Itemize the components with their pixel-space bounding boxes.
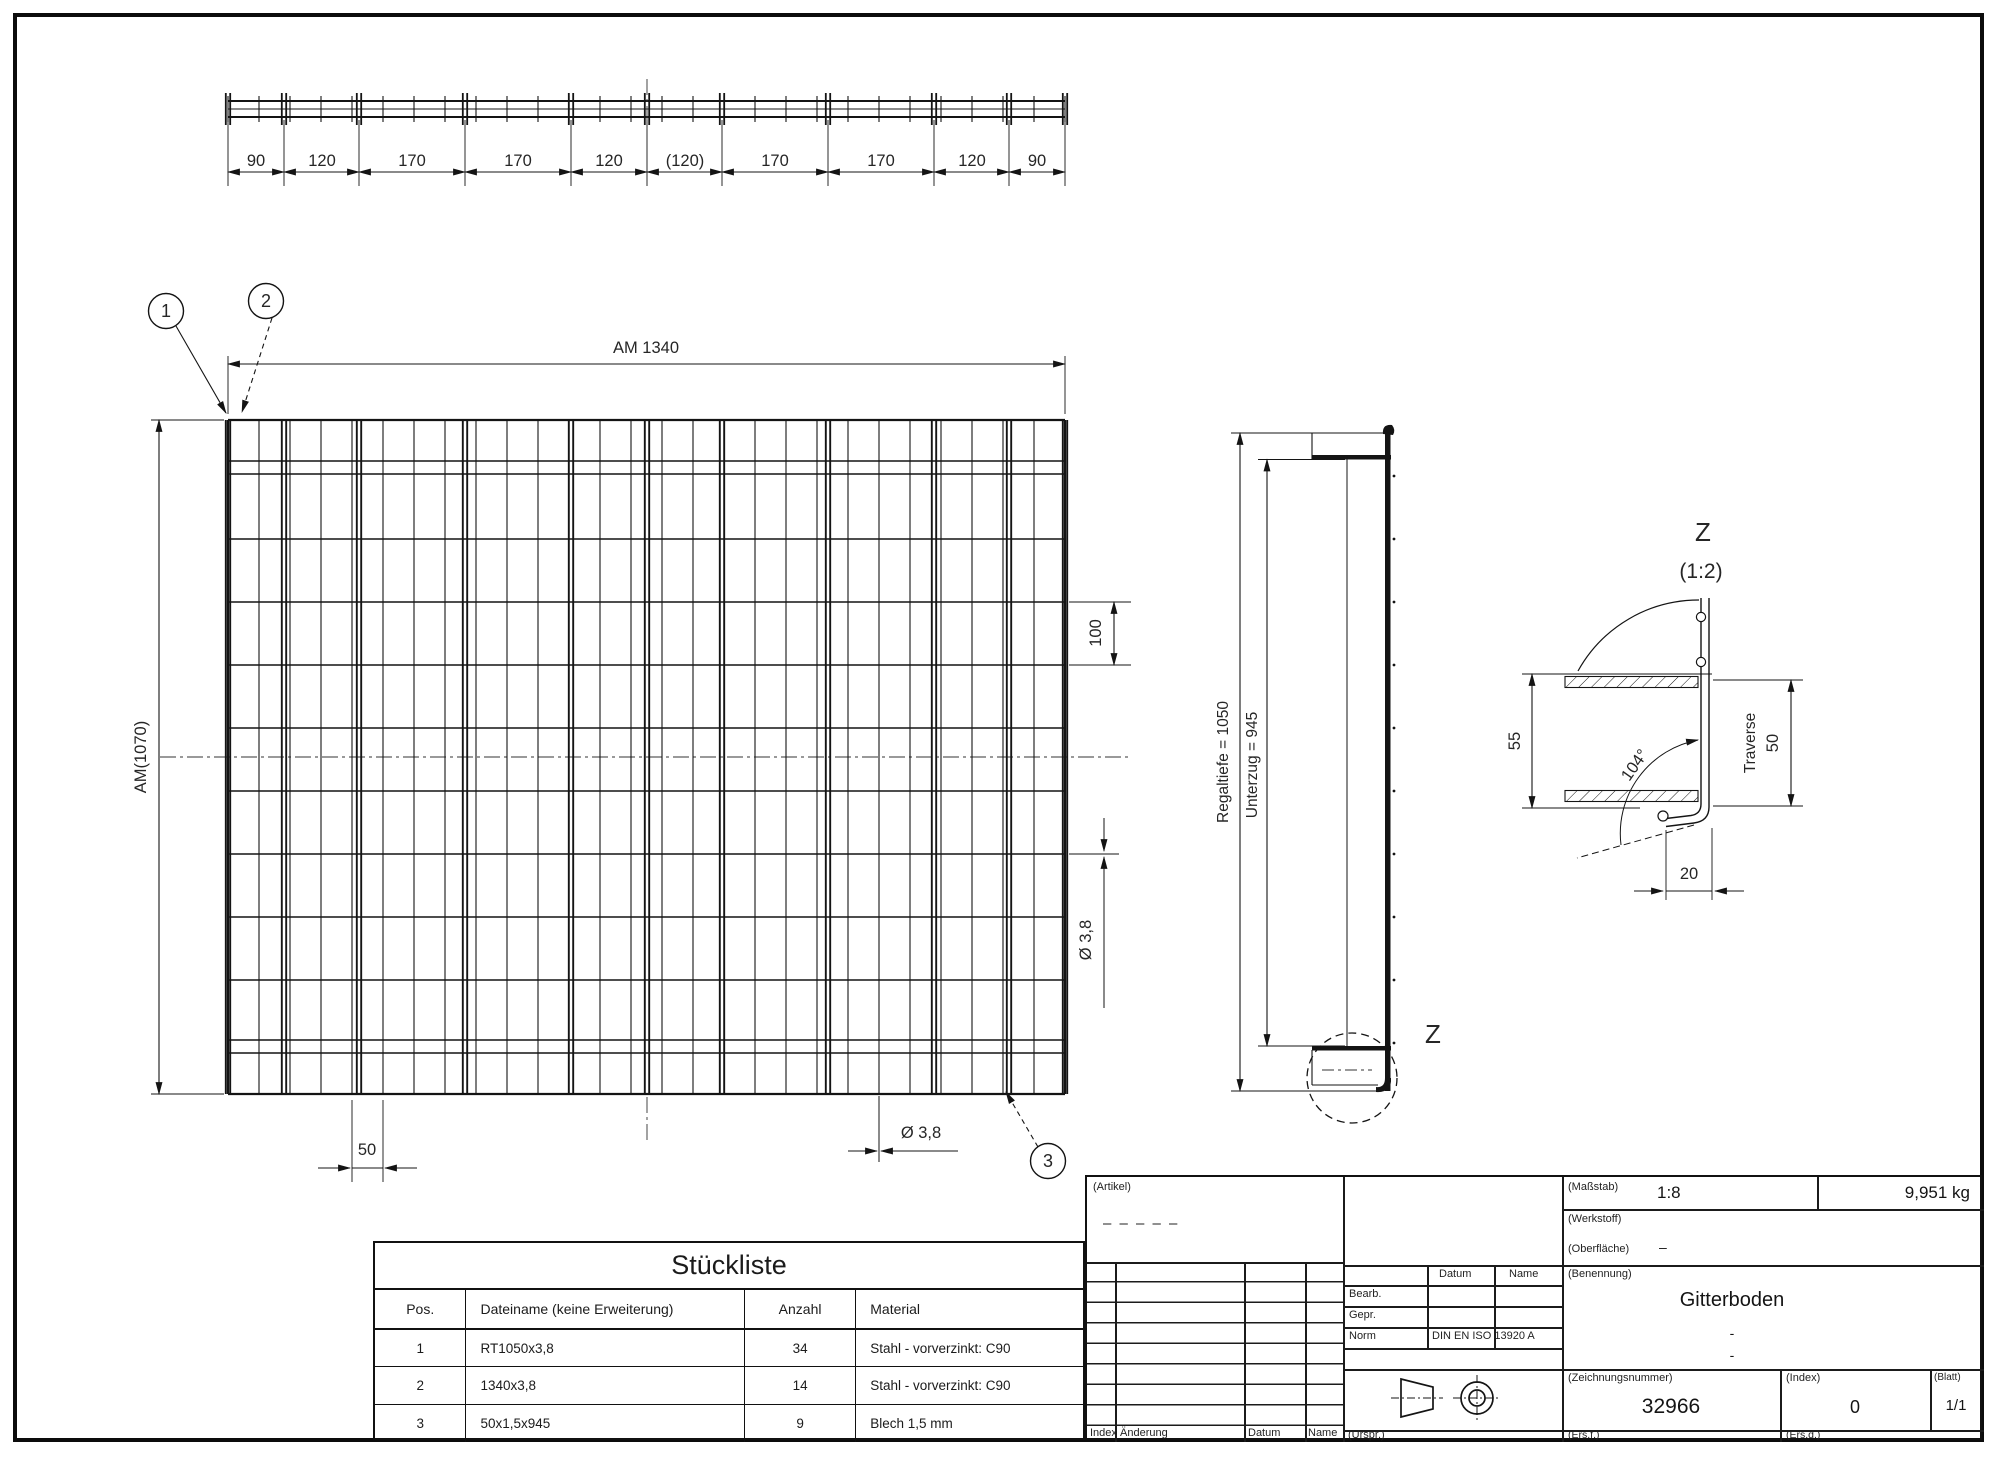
index-label: (Index) <box>1786 1372 1820 1384</box>
cell-name: RT1050x3,8 <box>466 1330 744 1366</box>
gepr-label: Gepr. <box>1349 1309 1376 1321</box>
projection-symbol <box>1389 1373 1519 1425</box>
benennung-sub1: - <box>1562 1325 1902 1341</box>
dim-100-label: 100 <box>1087 619 1105 647</box>
table-row: 3 50x1,5x945 9 Blech 1,5 mm <box>375 1405 1083 1442</box>
chain-dim-9: 120 <box>958 152 986 170</box>
detail-z-mark: Z <box>1425 1019 1441 1049</box>
side-view-wire-dots <box>1393 475 1396 1045</box>
blatt-value: 1/1 <box>1930 1397 1982 1414</box>
ersf-label: (Ers.f.) <box>1568 1429 1600 1441</box>
dim-wire-bottom: Ø 3,8 <box>848 1096 958 1162</box>
detail-z-traverse-label: Traverse <box>1742 713 1759 774</box>
rev-col-datum: Datum <box>1248 1427 1280 1439</box>
bearb-label: Bearb. <box>1349 1288 1381 1300</box>
detail-z-50-label: 50 <box>1764 734 1782 752</box>
chain-dim-6: (120) <box>666 152 705 170</box>
col-material: Material <box>856 1290 1083 1328</box>
cell-qty: 14 <box>745 1367 856 1403</box>
rev-col-index: Index <box>1090 1427 1117 1439</box>
chain-dim-3: 170 <box>398 152 426 170</box>
chain-dim-7: 170 <box>761 152 789 170</box>
cell-pos: 2 <box>375 1367 466 1403</box>
index-value: 0 <box>1780 1397 1930 1418</box>
balloon-2-label: 2 <box>261 291 271 311</box>
dim-am1340: AM 1340 <box>228 339 1065 414</box>
masstab-value: 1:8 <box>1657 1183 1681 1203</box>
col-pos: Pos. <box>375 1290 466 1328</box>
artikel-value: – – – – – <box>1103 1215 1179 1232</box>
detail-z-scale: (1:2) <box>1679 560 1722 583</box>
detail-z-angle-label: 104° <box>1618 746 1652 784</box>
dim-wire-right-label: Ø 3,8 <box>1077 920 1095 960</box>
cell-pos: 1 <box>375 1330 466 1366</box>
cell-pos: 3 <box>375 1405 466 1442</box>
col-dateiname: Dateiname (keine Erweiterung) <box>466 1290 744 1328</box>
cell-material: Stahl - vorverzinkt: C90 <box>856 1367 1083 1403</box>
blatt-label: (Blatt) <box>1934 1372 1961 1383</box>
cell-material: Stahl - vorverzinkt: C90 <box>856 1330 1083 1366</box>
chain-dim-2: 120 <box>308 152 336 170</box>
benennung-label: (Benennung) <box>1568 1268 1632 1280</box>
parts-list-header: Pos. Dateiname (keine Erweiterung) Anzah… <box>375 1290 1083 1330</box>
title-block: (Artikel) – – – – – Index Änderung Datum… <box>1085 1175 1982 1440</box>
benennung-sub2: - <box>1562 1347 1902 1363</box>
approval-datum-header: Datum <box>1439 1268 1471 1280</box>
cell-material: Blech 1,5 mm <box>856 1405 1083 1442</box>
approval-name-header: Name <box>1509 1268 1538 1280</box>
detail-z-20-label: 20 <box>1680 865 1698 883</box>
zeichnungsnummer-value: 32966 <box>1562 1395 1780 1419</box>
side-view: Z Regaltiefe = 1050 Unterzug = 945 <box>1215 425 1441 1123</box>
cell-qty: 9 <box>745 1405 856 1442</box>
rev-col-name: Name <box>1308 1427 1337 1439</box>
oberflaeche-value: – <box>1659 1239 1667 1255</box>
top-dimension-chain <box>228 120 1065 186</box>
dim-am1070-label: AM(1070) <box>132 721 150 793</box>
chain-dim-10: 90 <box>1028 152 1046 170</box>
col-anzahl: Anzahl <box>745 1290 856 1328</box>
cell-name: 1340x3,8 <box>466 1367 744 1403</box>
table-row: 2 1340x3,8 14 Stahl - vorverzinkt: C90 <box>375 1367 1083 1404</box>
dim-100: 100 <box>1069 602 1131 665</box>
centerlines <box>160 79 1132 1143</box>
masstab-label: (Maßstab) <box>1568 1181 1618 1193</box>
ersd-label: (Ers.d.) <box>1786 1429 1820 1441</box>
top-edge-view <box>226 93 1067 125</box>
chain-dim-8: 170 <box>867 152 895 170</box>
regaltiefe-label: Regaltiefe = 1050 <box>1215 701 1232 823</box>
balloon-1-label: 1 <box>161 301 171 321</box>
rev-col-aenderung: Änderung <box>1120 1427 1168 1439</box>
artikel-label: (Artikel) <box>1093 1181 1131 1193</box>
cell-qty: 34 <box>745 1330 856 1366</box>
dim-wire-right: Ø 3,8 <box>1069 818 1119 1008</box>
werkstoff-label: (Werkstoff) <box>1568 1213 1621 1225</box>
chain-dim-1: 90 <box>247 152 265 170</box>
dim-am1070: AM(1070) <box>132 420 224 1094</box>
chain-dim-5: 120 <box>595 152 623 170</box>
parts-list-table: Stückliste Pos. Dateiname (keine Erweite… <box>373 1241 1085 1440</box>
benennung-value: Gitterboden <box>1562 1289 1902 1312</box>
norm-label: Norm <box>1349 1330 1376 1342</box>
chain-dim-4: 170 <box>504 152 532 170</box>
zeichnungsnummer-label: (Zeichnungsnummer) <box>1568 1372 1673 1384</box>
norm-value: DIN EN ISO 13920 A <box>1432 1330 1535 1342</box>
dim-wire-bottom-label: Ø 3,8 <box>901 1124 941 1142</box>
unterzug-label: Unterzug = 945 <box>1244 712 1261 818</box>
oberflaeche-label: (Oberfläche) <box>1568 1243 1629 1255</box>
dim-50-label: 50 <box>358 1141 376 1159</box>
drawing-sheet: { "drawing": { "top_dim_chain": ["90","1… <box>0 0 2000 1458</box>
detail-z-view: Z (1:2) 104° 55 Traverse 50 20 <box>1506 517 1803 900</box>
dim-50: 50 <box>318 1100 417 1182</box>
detail-z-title: Z <box>1695 517 1711 547</box>
urspr-label: (Urspr.) <box>1348 1429 1385 1441</box>
cell-name: 50x1,5x945 <box>466 1405 744 1442</box>
dim-am1340-label: AM 1340 <box>613 339 679 357</box>
table-row: 1 RT1050x3,8 34 Stahl - vorverzinkt: C90 <box>375 1330 1083 1367</box>
detail-z-55-label: 55 <box>1506 732 1524 750</box>
weight-value: 9,951 kg <box>1905 1183 1970 1203</box>
top-dimension-chain-labels: 90 120 170 170 120 (120) 170 170 120 90 <box>247 152 1046 170</box>
balloon-3-label: 3 <box>1043 1151 1053 1171</box>
parts-list-title: Stückliste <box>375 1243 1083 1290</box>
